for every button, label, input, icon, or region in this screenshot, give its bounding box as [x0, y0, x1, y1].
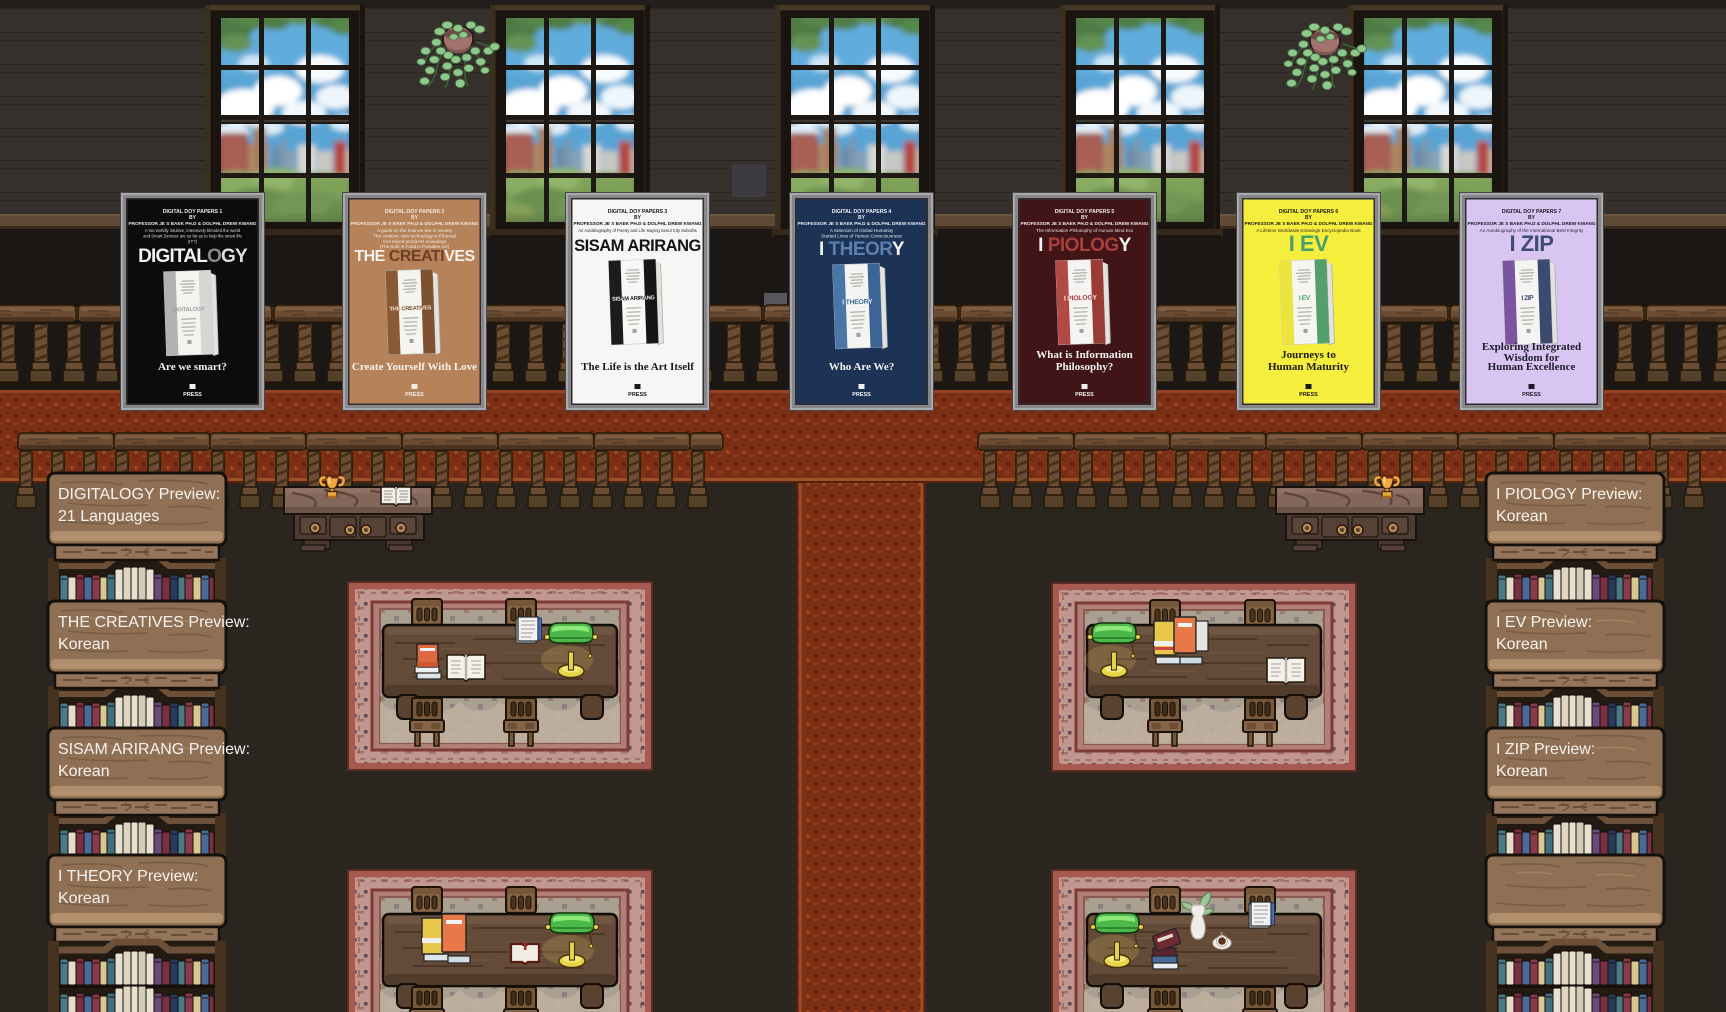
svg-text:PRESS: PRESS	[1075, 392, 1094, 398]
svg-text:Human Excellence: Human Excellence	[1488, 361, 1576, 373]
svg-text:(IT?): (IT?)	[188, 239, 198, 244]
svg-text:PRESS: PRESS	[628, 392, 647, 398]
svg-text:I PIOLOGY: I PIOLOGY	[1038, 235, 1131, 256]
svg-text:I EV Preview:: I EV Preview:	[1496, 614, 1592, 631]
svg-text:I PIOLOGY Preview:: I PIOLOGY Preview:	[1496, 486, 1642, 503]
svg-text:I EV: I EV	[1289, 231, 1329, 256]
svg-text:Korean: Korean	[58, 636, 110, 653]
svg-text:The Life is the Art Itself: The Life is the Art Itself	[581, 361, 694, 373]
svg-text:DIGITALOGY: DIGITALOGY	[138, 246, 248, 267]
svg-text:SISAM ARIRANG Preview:: SISAM ARIRANG Preview:	[58, 741, 250, 758]
svg-text:And mixed problems nowadays: And mixed problems nowadays	[383, 239, 448, 244]
svg-text:PROFESSOR JE S BAEK PH.D & DOL: PROFESSOR JE S BAEK PH.D & DOLPHL DREW K…	[1020, 221, 1148, 226]
svg-text:21 Languages: 21 Languages	[58, 508, 159, 525]
svg-text:Who Are We?: Who Are We?	[829, 361, 895, 373]
svg-text:Korean: Korean	[58, 890, 110, 907]
svg-text:The creative: new technology i: The creative: new technology is Ethereal	[373, 233, 456, 238]
svg-text:Journeys to: Journeys to	[1281, 349, 1336, 361]
svg-text:A guide on the how we live in: A guide on the how we live in society	[377, 228, 453, 233]
svg-text:Korean: Korean	[1496, 508, 1548, 525]
svg-text:An Autobiography of Poetry and: An Autobiography of Poetry and Life stay…	[578, 228, 697, 233]
svg-text:PROFESSOR JE S BAEK PH.D & DOL: PROFESSOR JE S BAEK PH.D & DOLPHL DREW K…	[1244, 221, 1372, 226]
svg-text:Korean: Korean	[1496, 636, 1548, 653]
svg-text:THE CREATIVES: THE CREATIVES	[354, 248, 475, 265]
svg-text:I THEORY: I THEORY	[819, 239, 905, 260]
svg-text:PROFESSOR JE S BAEK PH.D & DOL: PROFESSOR JE S BAEK PH.D & DOLPHL DREW K…	[1467, 221, 1595, 226]
svg-text:PRESS: PRESS	[1299, 392, 1318, 398]
svg-text:I EV: I EV	[1299, 295, 1311, 302]
svg-text:I ZIP Preview:: I ZIP Preview:	[1496, 741, 1595, 758]
svg-text:PRESS: PRESS	[1522, 392, 1541, 398]
svg-text:PROFESSOR JE S BAEK PH.D & DOL: PROFESSOR JE S BAEK PH.D & DOLPHL DREW K…	[797, 221, 925, 226]
svg-text:PROFESSOR JE S BAEK PH.D & DOL: PROFESSOR JE S BAEK PH.D & DOLPHL DREW K…	[573, 221, 701, 226]
svg-text:The Information Philosophy of: The Information Philosophy of Human Mind…	[1036, 228, 1133, 233]
svg-text:PRESS: PRESS	[183, 392, 202, 398]
svg-text:DIGITALOGY: DIGITALOGY	[172, 306, 205, 313]
svg-text:Started Lines of Human Conscio: Started Lines of Human Consciousness	[821, 233, 902, 238]
svg-text:Korean: Korean	[1496, 763, 1548, 780]
svg-text:and Smart Devices are so far a: and Smart Devices are so far as to help …	[143, 233, 242, 238]
svg-text:I THEORY: I THEORY	[842, 298, 873, 306]
svg-text:DIGITALOGY Preview:: DIGITALOGY Preview:	[58, 486, 220, 503]
svg-text:Are we smart?: Are we smart?	[158, 361, 227, 373]
svg-text:I ZIP: I ZIP	[1510, 231, 1554, 256]
svg-text:I THEORY Preview:: I THEORY Preview:	[58, 868, 199, 885]
svg-text:SISAM ARIRANG: SISAM ARIRANG	[574, 237, 701, 255]
svg-text:Create Yourself With Love: Create Yourself With Love	[352, 361, 477, 373]
svg-text:PRESS: PRESS	[405, 392, 424, 398]
svg-text:Human Maturity: Human Maturity	[1268, 361, 1349, 373]
svg-text:THE CREATIVES Preview:: THE CREATIVES Preview:	[58, 614, 250, 631]
svg-text:Philosophy?: Philosophy?	[1056, 361, 1113, 373]
svg-text:Korean: Korean	[58, 763, 110, 780]
svg-text:PROFESSOR JE S BAEK PH.D & DOL: PROFESSOR JE S BAEK PH.D & DOLPHL DREW K…	[128, 221, 256, 226]
svg-text:PRESS: PRESS	[852, 392, 871, 398]
svg-text:What is Information: What is Information	[1036, 349, 1133, 361]
svg-text:A too worldly intuitive, inten: A too worldly intuitive, intensively ble…	[145, 228, 241, 233]
svg-text:PROFESSOR JE S BAEK PH.D & DOL: PROFESSOR JE S BAEK PH.D & DOLPHL DREW K…	[350, 221, 478, 226]
svg-text:I ZIP: I ZIP	[1521, 295, 1534, 302]
svg-text:A Selection of Global Humanity: A Selection of Global Humanity	[830, 228, 894, 233]
